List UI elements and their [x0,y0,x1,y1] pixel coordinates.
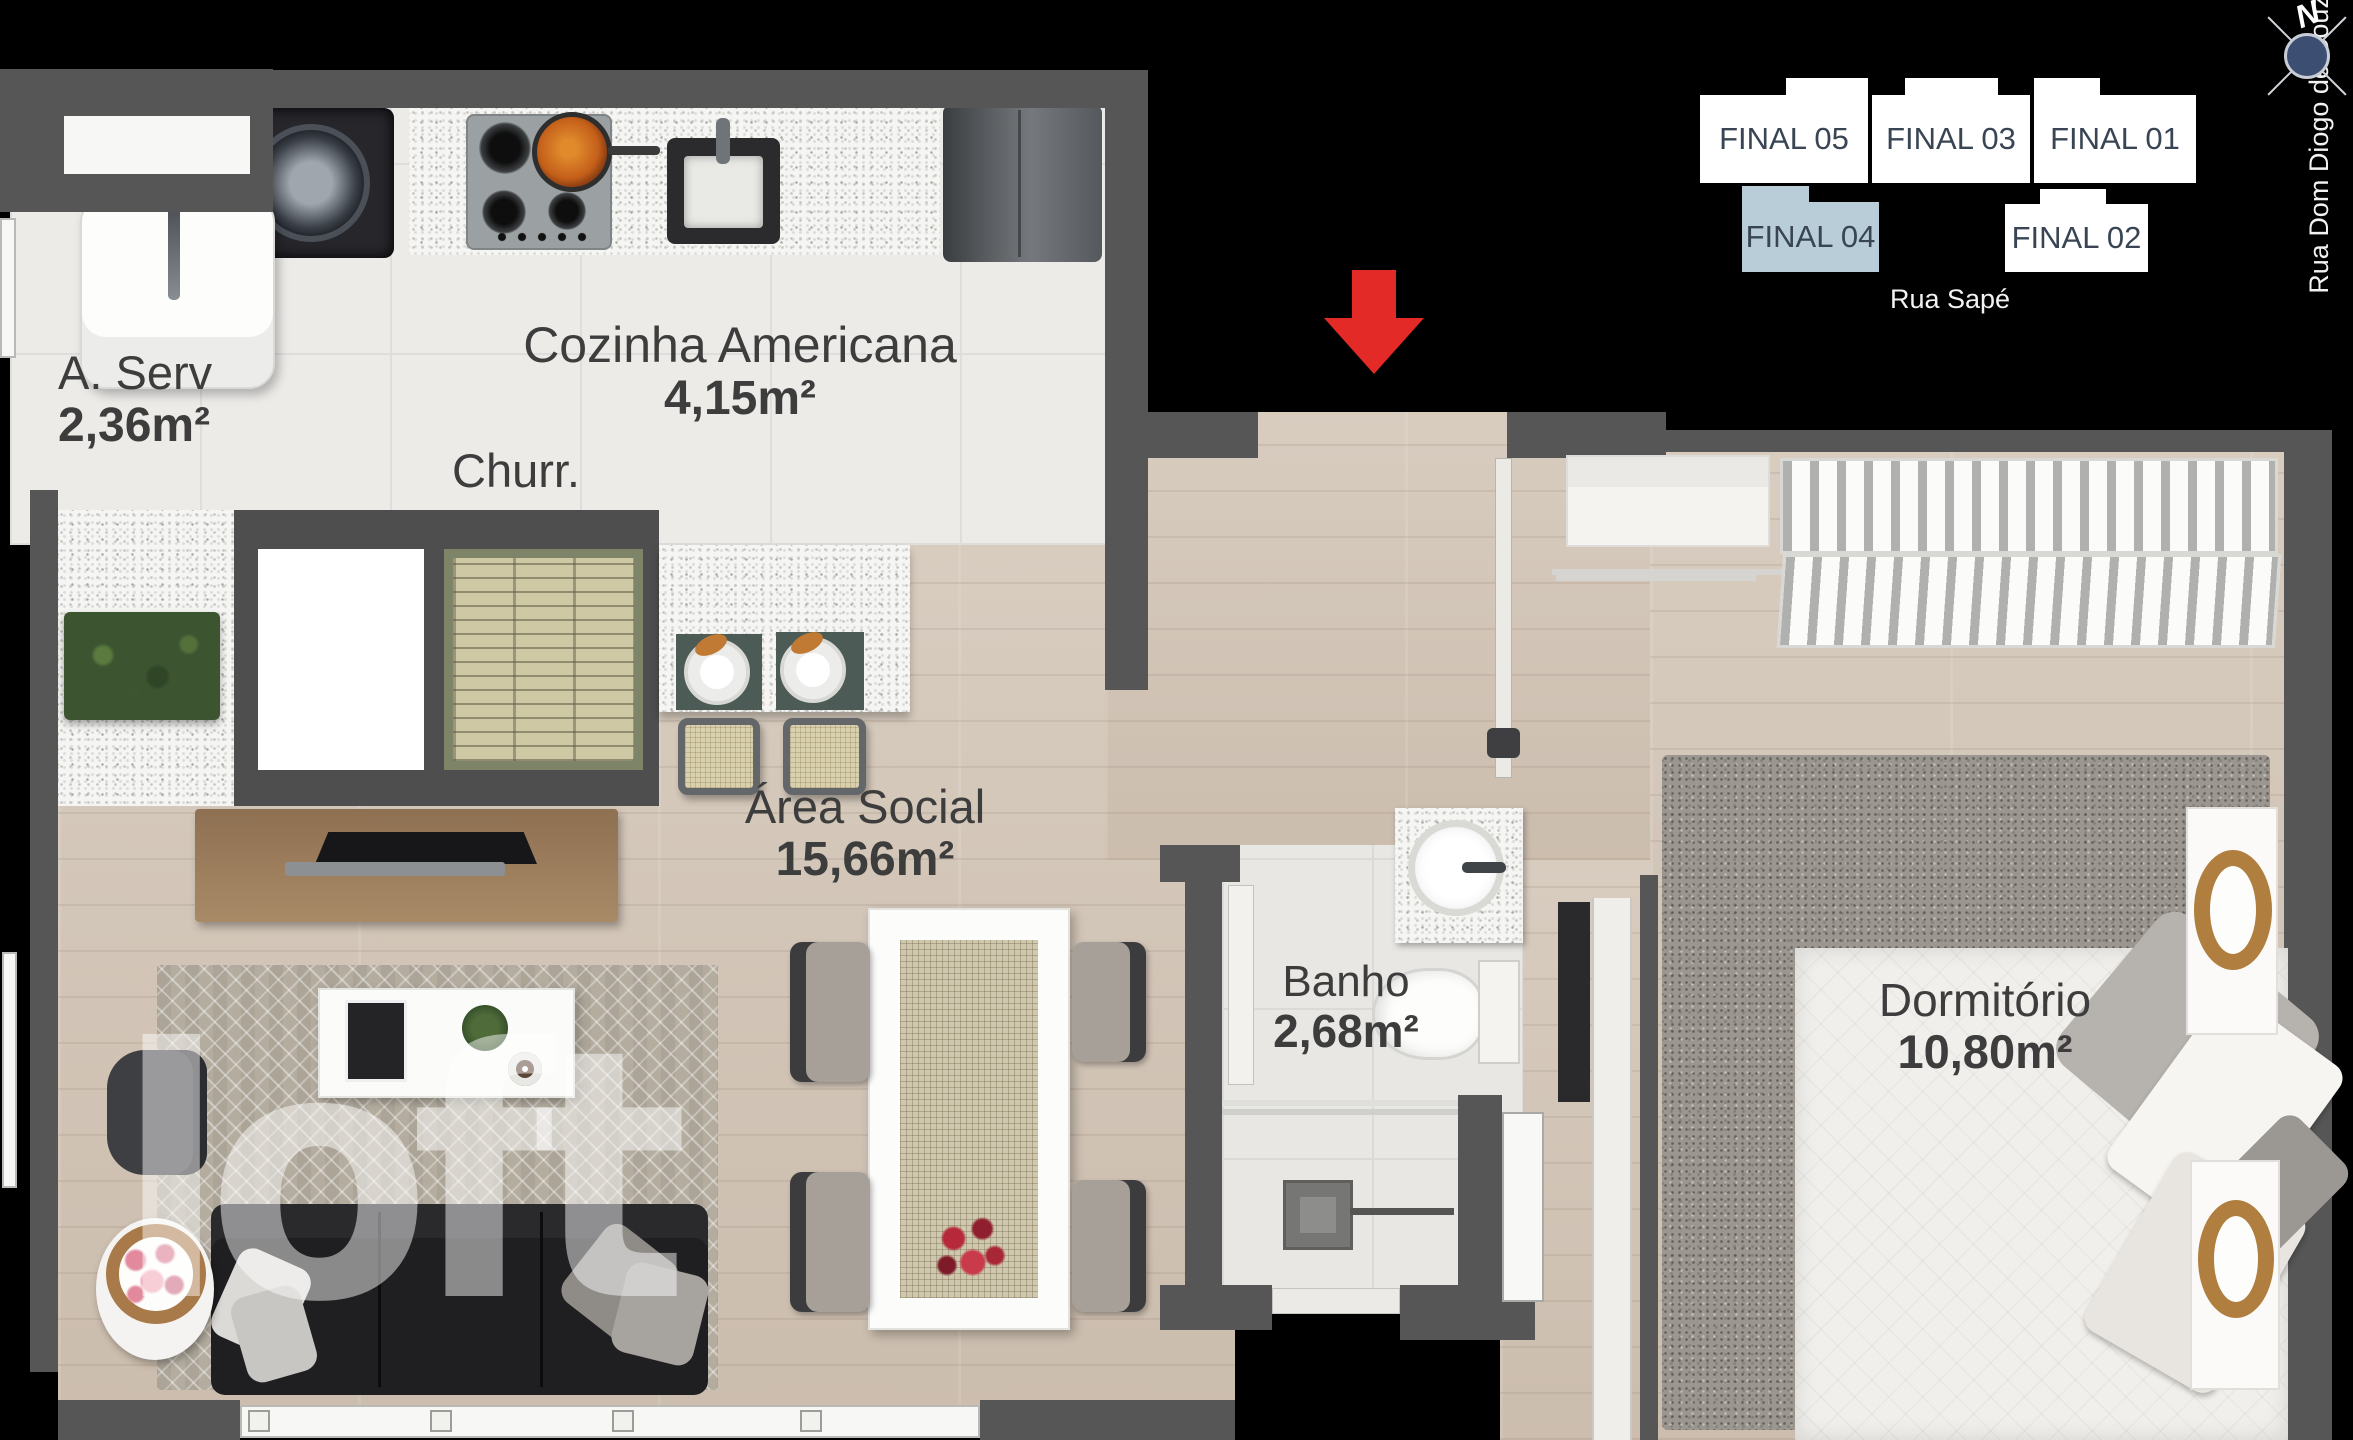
stove-knobs [492,232,588,242]
tv-soundbar [285,862,505,876]
unit-final-02: FINAL 02 [2005,204,2148,272]
burner-1 [479,122,531,174]
street-label: Rua Sapé [1890,284,2010,314]
frying-pan [532,112,612,192]
window-mullion-2 [430,1410,452,1432]
corridor-dark-panel [1558,902,1590,1102]
entry-door-handle [1487,728,1520,758]
room-name: Banho [1236,958,1456,1006]
room-area: 4,15m² [480,372,1000,426]
dining-chair-3 [1072,942,1146,1062]
watermark-text: loft [115,977,668,1378]
label-churr: Churr. [452,446,580,497]
bookshelf-row-2 [1777,554,2282,648]
bath-threshold [1272,1288,1400,1314]
window-living-bottom [240,1405,980,1438]
burner-2 [482,190,526,234]
wall-bedroom-left-lower [1640,875,1658,1440]
unit-label: FINAL 03 [1886,121,2016,157]
label-area-social: Área Social 15,66m² [695,782,1035,887]
floor-plan-image: A. Serv 2,36m² Cozinha Americana 4,15m² … [0,0,2353,1440]
nightstand-1-tray [2194,850,2272,970]
dining-chair-4 [1072,1180,1146,1312]
compass-rose [2284,33,2330,79]
unit-label: FINAL 02 [2012,220,2142,256]
wall-bath-bottom-left [1160,1285,1272,1330]
churrasqueira-grill [444,549,643,770]
wall-hall-top-right [1507,412,1666,458]
burner-3 [548,192,586,230]
label-cozinha: Cozinha Americana 4,15m² [480,318,1000,426]
wardrobe-shelf [1566,455,1770,547]
wall-living-bottom-right [980,1400,1235,1440]
room-name: Cozinha Americana [480,318,1000,372]
bookshelf-row-1 [1780,458,2278,554]
room-area: 15,66m² [695,833,1035,887]
unit-final-04: FINAL 04 [1742,202,1879,272]
bedroom-sliding-door [1592,898,1632,1440]
shower-arm [1350,1208,1454,1215]
wall-bath-top [1160,845,1240,882]
dining-flowers [920,1200,1016,1296]
window-mullion-4 [800,1410,822,1432]
shower-glass [1222,1100,1458,1106]
service-shaft [1502,1112,1544,1302]
window-mullion-3 [612,1410,634,1432]
window-left-living [2,952,17,1188]
churrasqueira-counter [258,549,424,770]
unit-label: FINAL 04 [1746,219,1876,255]
dining-chair-2 [790,1172,870,1312]
unit-final-03: FINAL 03 [1872,95,2030,183]
unit-label: FINAL 01 [2050,121,2180,157]
unit-label: FINAL 05 [1719,121,1849,157]
wall-hall-top-left [1105,412,1258,458]
wall-bedroom-top [1650,430,2332,452]
planter-box [64,612,220,720]
wall-bath-left [1185,850,1222,1325]
window-service [64,116,250,174]
unit-final-05: FINAL 05 [1700,95,1868,183]
room-name: Área Social [695,782,1035,833]
wall-bedroom-right [2284,430,2332,1440]
nightstand-2-tray [2198,1200,2274,1318]
tv-screen [315,832,537,864]
shower-head [1283,1180,1353,1250]
loft-watermark: loft [115,1005,668,1350]
dining-chair-1 [790,942,870,1082]
wall-living-left [30,490,58,1372]
fridge-divider [1018,110,1021,257]
wall-kitchen-right [1105,70,1148,690]
label-banho: Banho 2,68m² [1236,958,1456,1057]
toilet-tank [1478,960,1520,1064]
room-area: 2,36m² [58,399,212,453]
room-area: 10,80m² [1820,1026,2150,1079]
unit-final-01: FINAL 01 [2034,95,2196,183]
room-name: Churr. [452,446,580,497]
window-mullion-1 [248,1410,270,1432]
window-left-top [0,218,16,358]
bath-faucet [1462,862,1506,873]
pan-handle [608,146,660,155]
kitchen-sink-basin [684,156,763,228]
entrance-arrow-head [1324,318,1424,374]
room-area: 2,68m² [1236,1006,1456,1058]
wardrobe-rail [1556,575,1756,581]
label-dormitorio: Dormitório 10,80m² [1820,976,2150,1078]
entrance-arrow-shaft [1352,270,1396,320]
fridge [943,105,1102,262]
room-name: A. Serv [58,348,212,399]
street-rua-sape: Rua Sapé [1830,284,2070,315]
wall-living-bottom-left [58,1400,240,1440]
label-a-serv: A. Serv 2,36m² [58,348,212,453]
kitchen-faucet [716,118,730,164]
room-name: Dormitório [1820,976,2150,1026]
